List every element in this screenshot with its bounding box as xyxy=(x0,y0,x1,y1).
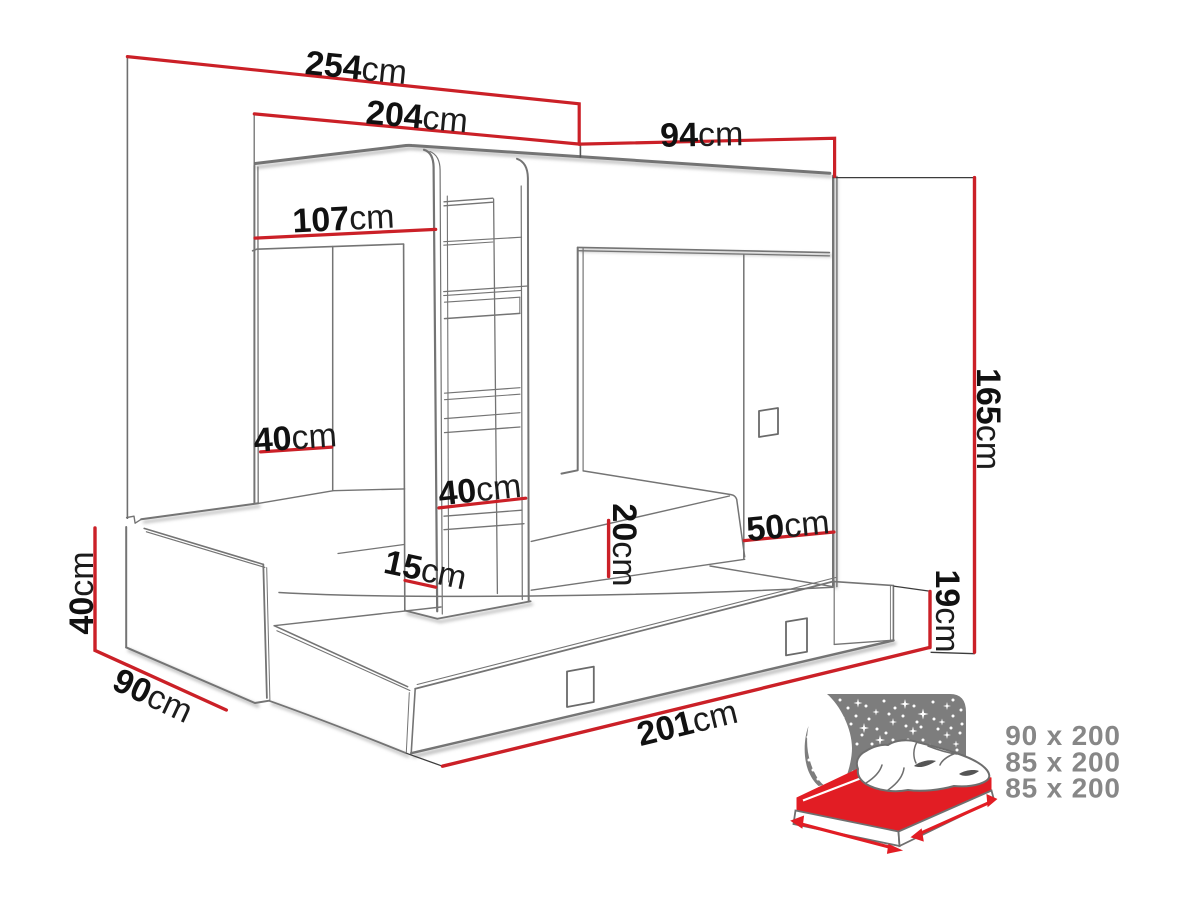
svg-text:40cm: 40cm xyxy=(63,551,101,634)
svg-text:19cm: 19cm xyxy=(928,569,966,652)
svg-text:107cm: 107cm xyxy=(292,198,396,241)
svg-text:50cm: 50cm xyxy=(745,503,831,549)
svg-text:85 x 200: 85 x 200 xyxy=(1005,773,1120,804)
svg-text:94cm: 94cm xyxy=(660,115,744,155)
svg-text:20cm: 20cm xyxy=(605,503,643,586)
svg-text:40cm: 40cm xyxy=(252,416,338,460)
svg-text:165cm: 165cm xyxy=(969,368,1007,470)
